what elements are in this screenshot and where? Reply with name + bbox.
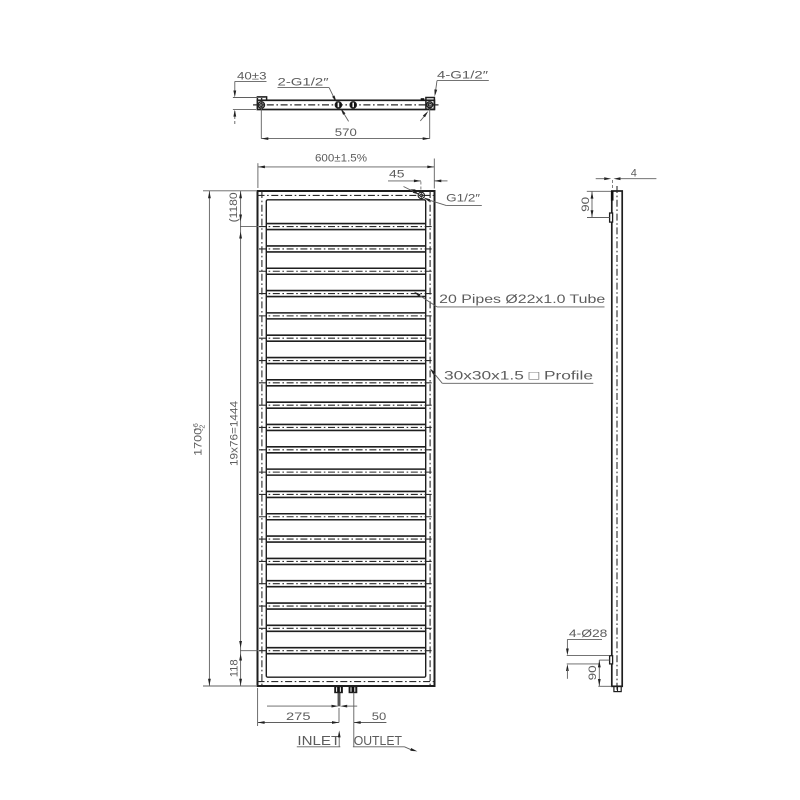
svg-text:90: 90 — [587, 665, 599, 680]
svg-text:INLET: INLET — [297, 733, 340, 748]
svg-text:45: 45 — [389, 168, 405, 180]
svg-text:G1/2″: G1/2″ — [446, 193, 480, 205]
svg-text:275: 275 — [286, 711, 311, 723]
svg-text:-2: -2 — [200, 425, 207, 431]
svg-text:570: 570 — [335, 127, 357, 139]
svg-text:4-G1/2″: 4-G1/2″ — [437, 70, 488, 82]
svg-text:OUTLET: OUTLET — [354, 733, 402, 748]
svg-text:50: 50 — [372, 711, 387, 723]
svg-text:20 Pipes Ø22x1.0 Tube: 20 Pipes Ø22x1.0 Tube — [439, 292, 605, 306]
svg-text:118: 118 — [228, 659, 240, 677]
svg-text:90: 90 — [580, 197, 592, 212]
svg-text:600±1.5%: 600±1.5% — [315, 152, 367, 164]
svg-text:40±3: 40±3 — [237, 71, 267, 83]
svg-text:19x76=1444: 19x76=1444 — [228, 401, 240, 466]
svg-text:30x30x1.5 □ Profile: 30x30x1.5 □ Profile — [444, 369, 593, 383]
svg-text:2-G1/2″: 2-G1/2″ — [278, 77, 329, 89]
svg-text:4-Ø28: 4-Ø28 — [569, 628, 608, 640]
svg-text:4: 4 — [631, 167, 637, 179]
svg-text:(1180: (1180 — [228, 192, 240, 222]
